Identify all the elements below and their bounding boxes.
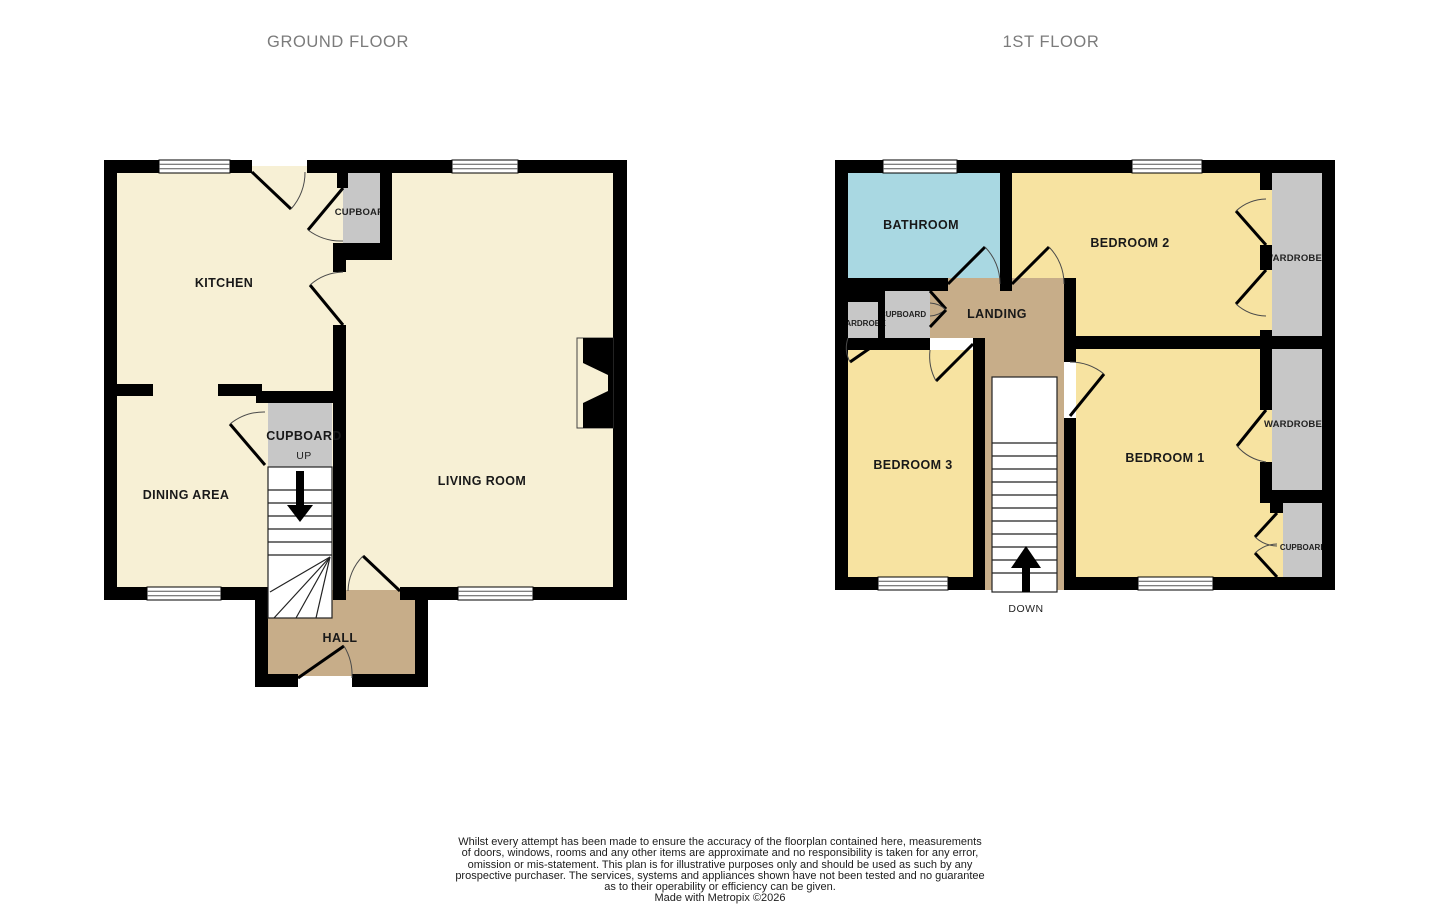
window bbox=[458, 587, 533, 600]
stairs-cupboard-label: CUPBOARD bbox=[266, 429, 341, 443]
ground-floor-plan: CUPBOARD bbox=[104, 160, 627, 687]
stairs-down bbox=[992, 377, 1057, 592]
stair-margin bbox=[985, 378, 992, 590]
window bbox=[452, 160, 518, 173]
metropix-credit: Made with Metropix ©2026 bbox=[0, 893, 1440, 904]
first-floor-plan: WARDROBE WARDROBE CUPBOARD WARDROBE CUPB… bbox=[835, 160, 1335, 615]
kitchen-label: KITCHEN bbox=[195, 276, 253, 290]
window bbox=[1132, 160, 1202, 173]
bedroom-2-label: BEDROOM 2 bbox=[1090, 236, 1169, 250]
living-room-label: LIVING ROOM bbox=[438, 474, 526, 488]
bathroom-label: BATHROOM bbox=[883, 218, 959, 232]
window bbox=[1138, 577, 1213, 590]
floorplan-page: GROUND FLOOR 1ST FLOOR CUPBOARD bbox=[0, 0, 1440, 906]
landing-label: LANDING bbox=[967, 307, 1027, 321]
stairs-up-label: UP bbox=[296, 450, 312, 462]
disclaimer-line: of doors, windows, rooms and any other i… bbox=[0, 848, 1440, 859]
cupboard-bedroom-1-label: CUPBOARD bbox=[1280, 543, 1326, 552]
cupboard-bedroom-1 bbox=[1283, 503, 1322, 577]
stairs-down-label: DOWN bbox=[1008, 603, 1043, 615]
disclaimer: Whilst every attempt has been made to en… bbox=[0, 837, 1440, 905]
cupboard-landing-label: CUPBOARD bbox=[880, 310, 926, 319]
window bbox=[159, 160, 230, 173]
stair-margin bbox=[1057, 378, 1064, 590]
floorplan-drawing: CUPBOARD bbox=[0, 0, 1440, 906]
window bbox=[883, 160, 957, 173]
bedroom-3-label: BEDROOM 3 bbox=[873, 458, 952, 472]
wardrobe-bedroom-1-label: WARDROBE bbox=[1264, 419, 1322, 430]
window bbox=[147, 587, 221, 600]
hall-label: HALL bbox=[323, 631, 358, 645]
wardrobe-bedroom-2-label: WARDROBE bbox=[1264, 253, 1322, 264]
stairs-up bbox=[268, 467, 332, 618]
window bbox=[878, 577, 948, 590]
bedroom-1-label: BEDROOM 1 bbox=[1125, 451, 1204, 465]
dining-area-label: DINING AREA bbox=[143, 488, 230, 502]
landing-stairwell bbox=[985, 338, 1064, 378]
